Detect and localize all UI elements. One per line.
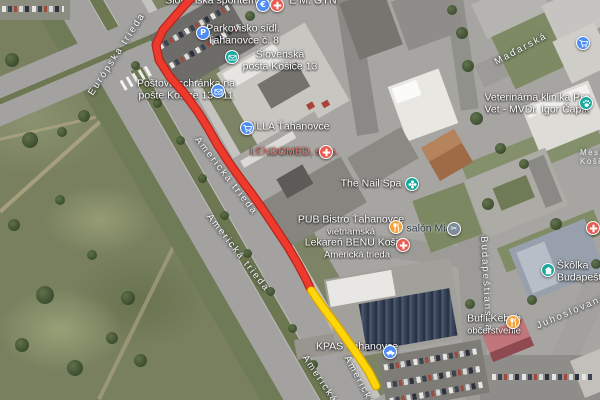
tree: [55, 195, 65, 205]
health-icon: [322, 148, 331, 157]
tree: [106, 332, 118, 344]
poi-right-edge-marker[interactable]: [586, 221, 600, 235]
slovenska-sporitelna-marker[interactable]: €: [256, 0, 270, 12]
salon-mia-marker[interactable]: ✂: [447, 222, 461, 236]
veterinarna-klinika-provet-label[interactable]: Veterinárna klinika ProVet - MVDr. Igor …: [484, 93, 589, 116]
shop-top-right-marker[interactable]: [576, 36, 590, 50]
tree: [22, 132, 38, 148]
bank-icon: €: [260, 1, 266, 9]
tree: [198, 174, 207, 183]
tree: [87, 250, 97, 260]
tree: [78, 110, 90, 122]
parkovisko-tahanovce-marker[interactable]: P: [196, 26, 210, 40]
school-icon: [544, 266, 553, 275]
tree: [245, 11, 255, 21]
tree: [5, 53, 19, 67]
food-icon: [392, 223, 401, 232]
tree: [550, 218, 562, 230]
car-icon: [386, 348, 395, 357]
kpas-tahanovce-marker[interactable]: [383, 345, 397, 359]
tree: [288, 324, 297, 333]
tree: [495, 143, 506, 154]
tree: [67, 360, 83, 376]
slovenska-sporitelna-label[interactable]: Slovenská sporiteľňa: [165, 0, 263, 7]
scissors-icon: ✂: [451, 225, 458, 233]
parkovisko-tahanovce-label[interactable]: Parkovisko sídl.Ťahanovce č. 8: [206, 24, 280, 47]
tree: [462, 60, 474, 72]
food-icon: [509, 318, 518, 327]
district-label: MestskKošice - T: [580, 148, 600, 166]
parking-icon: P: [200, 29, 206, 37]
salon-mia-label[interactable]: salón Mia: [407, 223, 452, 235]
billa-tahanovce-label[interactable]: BILLA Ťahanovce: [247, 121, 330, 133]
post-icon: [228, 53, 237, 62]
tree: [176, 136, 185, 145]
health-icon: [589, 224, 598, 233]
paw-icon: [582, 99, 591, 108]
veterinarna-klinika-provet-marker[interactable]: [579, 96, 593, 110]
tree: [220, 211, 229, 220]
tree: [36, 286, 54, 304]
skolka-budapestianska-marker[interactable]: [541, 263, 555, 277]
tree: [519, 159, 529, 169]
parked-cars: [492, 374, 592, 380]
tree: [527, 295, 537, 305]
slovenska-posta-marker[interactable]: [225, 50, 239, 64]
the-nail-spa-marker[interactable]: [405, 177, 419, 191]
mail-icon: [214, 87, 223, 96]
gyn-ambulancia-marker[interactable]: [270, 0, 284, 12]
the-nail-spa-label[interactable]: The Nail Spa: [341, 178, 402, 190]
tree: [15, 338, 29, 352]
billa-tahanovce-marker[interactable]: [240, 121, 254, 135]
tree: [465, 299, 475, 309]
flower-icon: [408, 180, 417, 189]
pharmacy-icon: [399, 241, 408, 250]
lendomed-marker[interactable]: [319, 145, 333, 159]
health-icon: [273, 1, 282, 10]
gyn-ambulancia-label[interactable]: E M. GYN: [289, 0, 336, 7]
cart-icon: [579, 39, 588, 48]
tree: [8, 219, 20, 231]
tree: [134, 354, 147, 367]
tree: [470, 112, 483, 125]
pub-bistro-tahanovce-marker[interactable]: [389, 220, 403, 234]
cart-icon: [243, 124, 252, 133]
slovenska-posta-label[interactable]: Slovenskápošta Košice 13: [243, 50, 318, 73]
tree: [121, 291, 135, 305]
postova-schranka-marker[interactable]: [211, 84, 225, 98]
bufli-kebab-marker[interactable]: [506, 315, 520, 329]
lekaren-benu-marker[interactable]: [396, 238, 410, 252]
skolka-budapestianska-label[interactable]: ŠkôlkaBudapeštianska: [557, 261, 600, 284]
tree: [447, 5, 457, 15]
lekaren-benu-label[interactable]: Lekáreň BENU KošiceAmerická trieda: [305, 238, 409, 261]
satellite-map[interactable]: Európska triedaAmerická triedaAmerická t…: [0, 0, 600, 400]
parking-lot: [0, 0, 70, 20]
tree: [482, 198, 494, 210]
tree: [131, 61, 140, 70]
tree: [57, 127, 67, 137]
tree: [456, 27, 468, 39]
